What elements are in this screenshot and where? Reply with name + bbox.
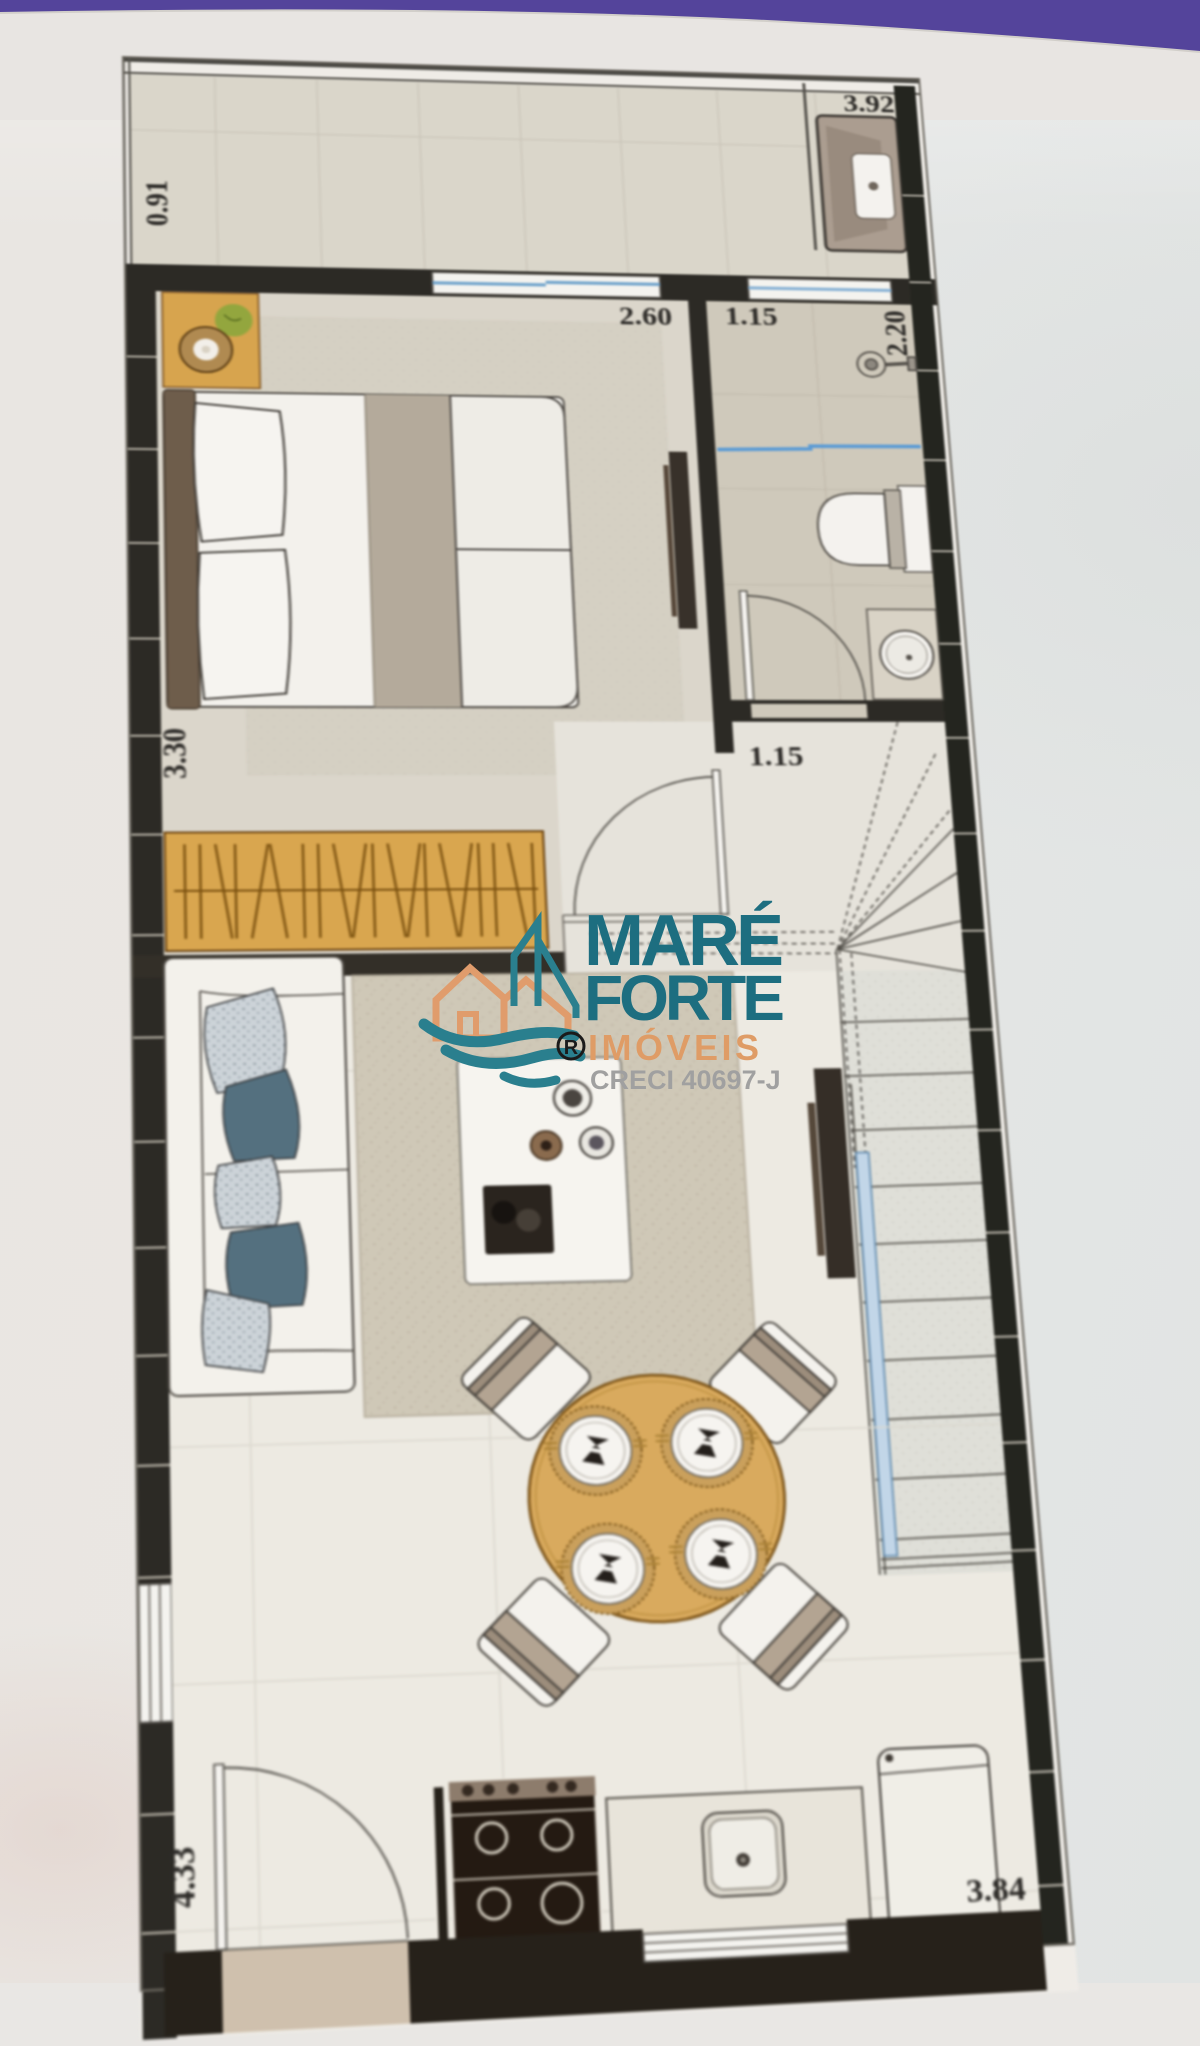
svg-text:3.84: 3.84 [965, 1870, 1027, 1910]
svg-text:R: R [564, 1037, 579, 1059]
svg-text:3.92: 3.92 [842, 90, 895, 119]
svg-text:4.33: 4.33 [164, 1846, 204, 1909]
svg-text:3.30: 3.30 [157, 728, 193, 779]
svg-text:1.15: 1.15 [724, 302, 778, 332]
svg-text:CRECI 40697-J: CRECI 40697-J [590, 1065, 781, 1095]
svg-text:2.60: 2.60 [618, 302, 673, 332]
svg-text:2.20: 2.20 [879, 310, 915, 356]
svg-text:1.15: 1.15 [748, 741, 805, 772]
svg-text:IMÓVEIS: IMÓVEIS [588, 1026, 763, 1068]
svg-text:FORTE: FORTE [584, 962, 783, 1034]
svg-text:0.91: 0.91 [141, 180, 176, 227]
